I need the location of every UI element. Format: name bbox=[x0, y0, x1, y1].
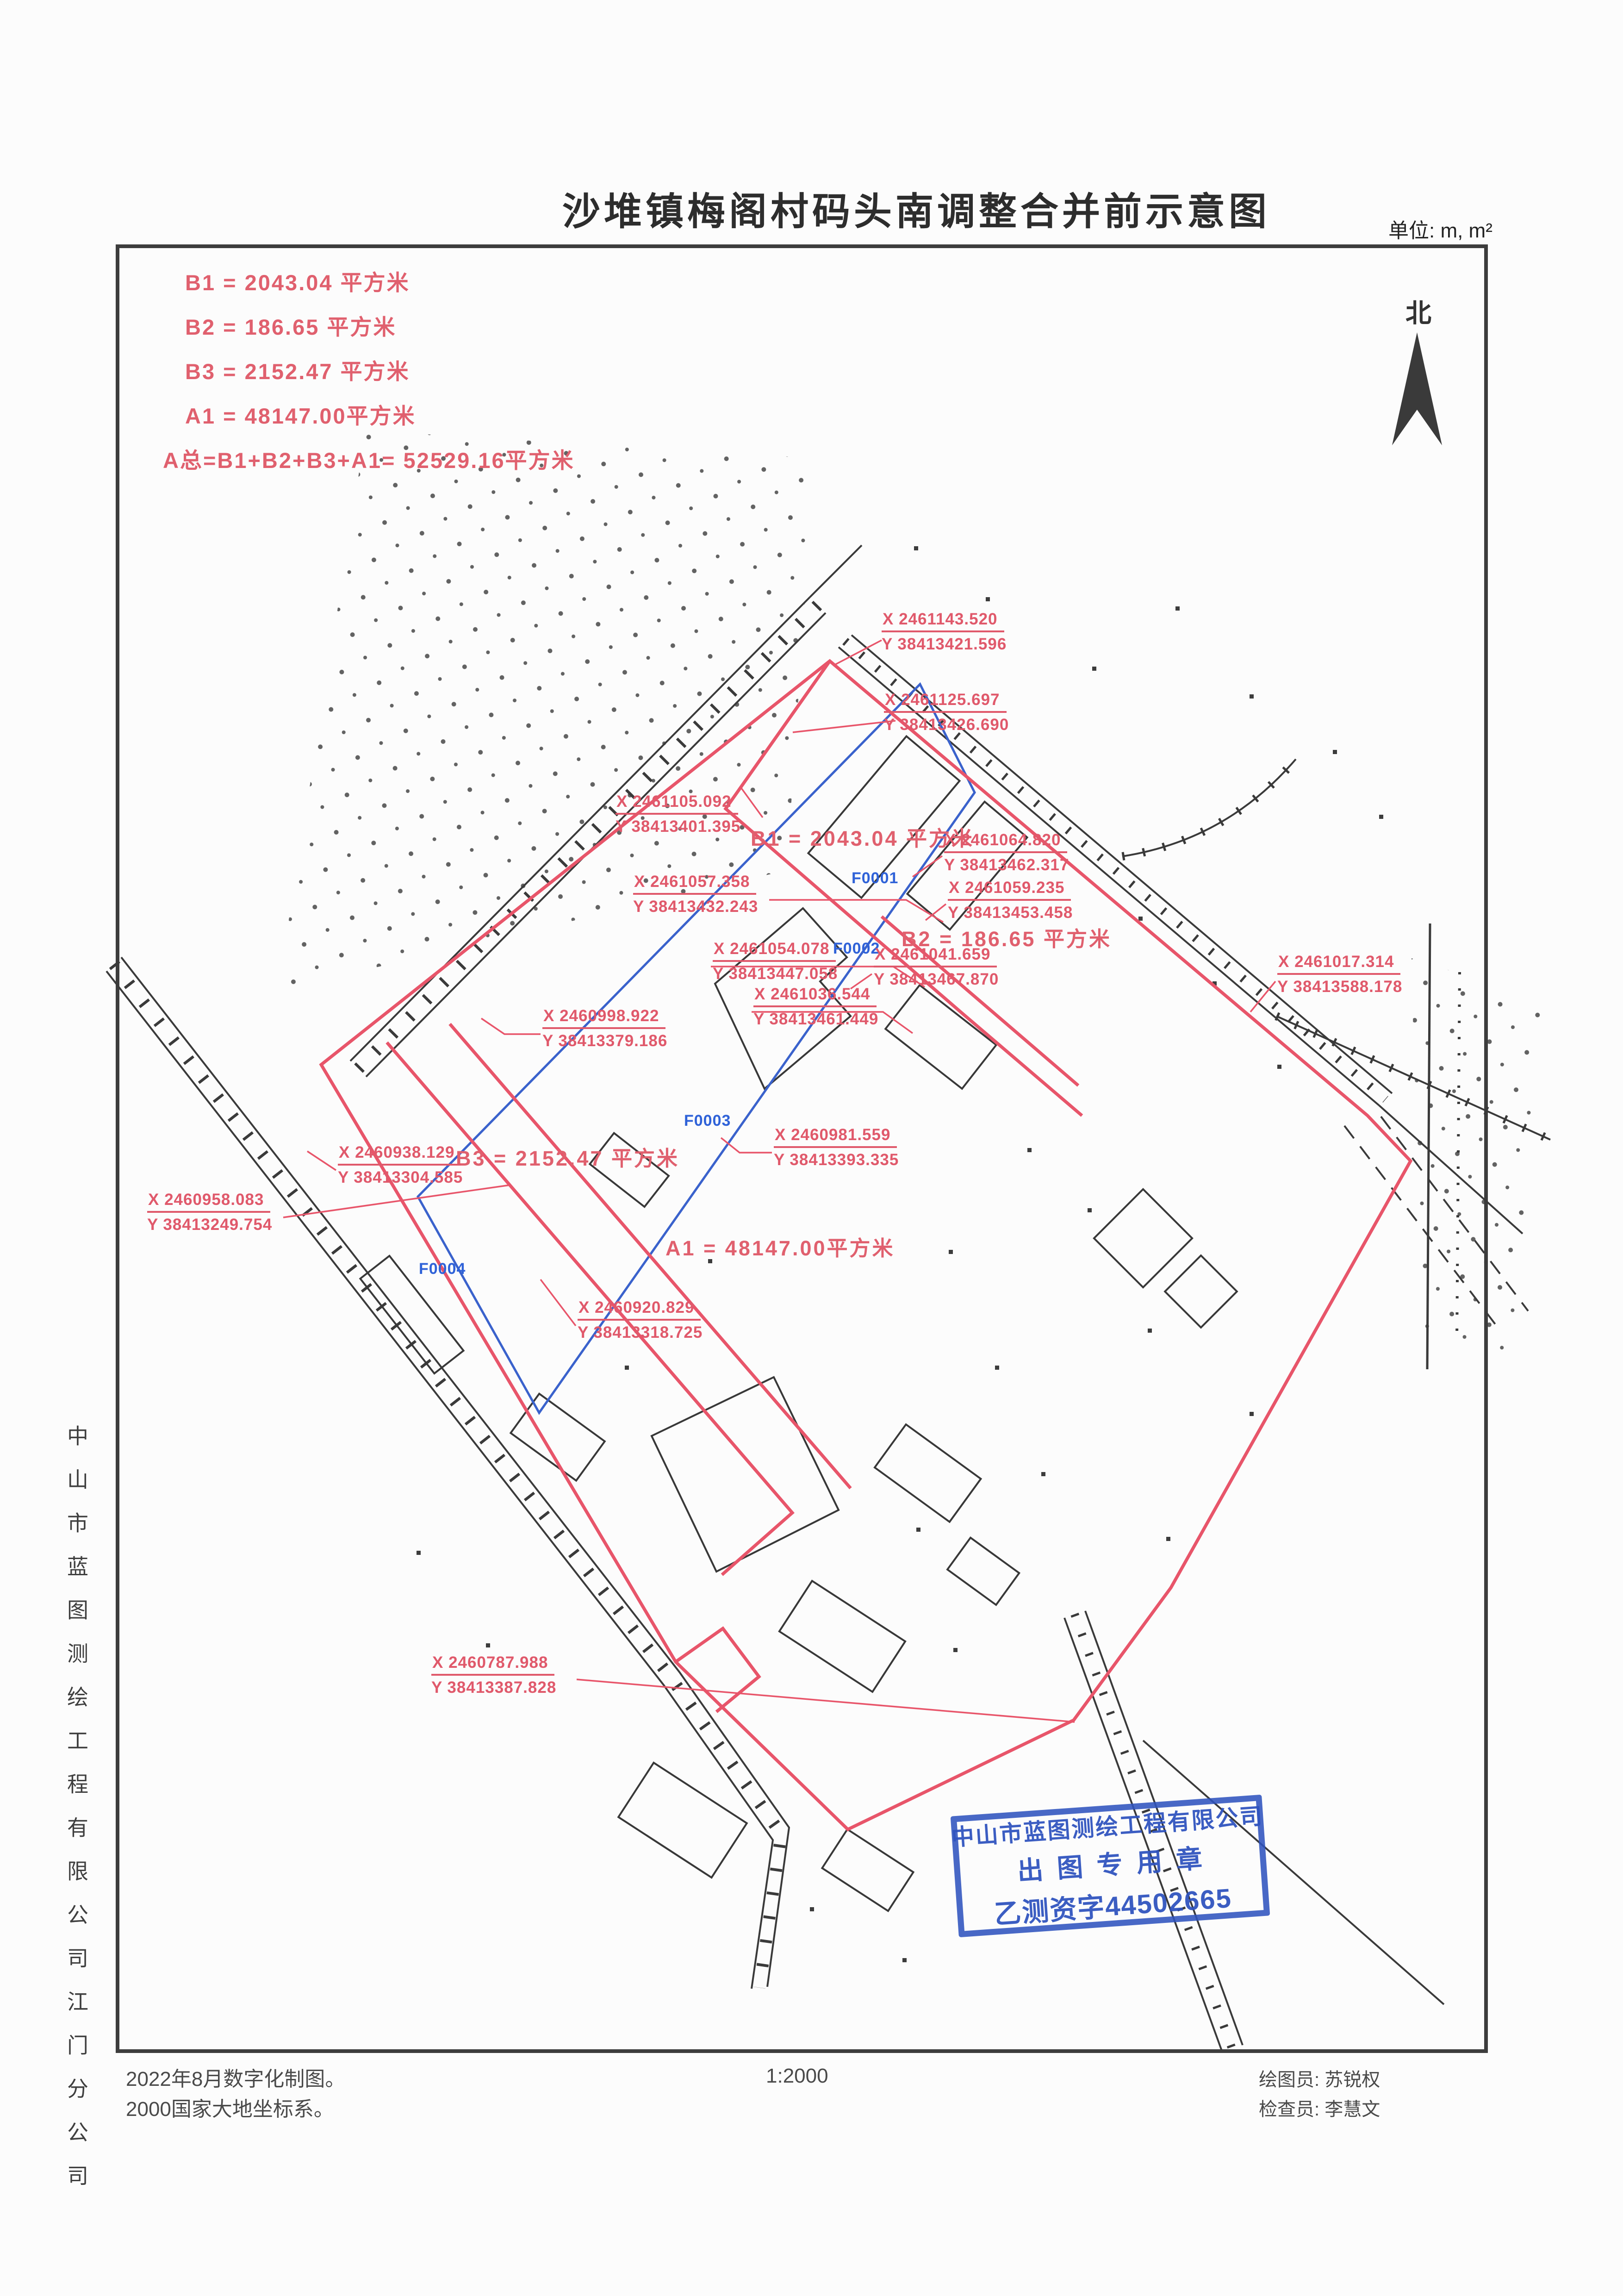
coord-label: X 2461041.659 Y 38413467.870 bbox=[874, 945, 999, 988]
area-summary: B1 = 2043.04 平方米 B2 = 186.65 平方米 B3 = 21… bbox=[185, 265, 575, 474]
coord-label: X 2461057.358 Y 38413432.243 bbox=[633, 873, 758, 916]
north-arrow-icon bbox=[1392, 332, 1442, 445]
footer-drafter: 绘图员: 苏锐权 bbox=[1259, 2065, 1380, 2091]
footer-note-1: 2022年8月数字化制图。 bbox=[126, 2062, 345, 2092]
dot-field-right bbox=[1412, 958, 1541, 1366]
coord-label: X 2460998.922 Y 38413379.186 bbox=[542, 1007, 667, 1050]
coord-label: X 2461017.314 Y 38413588.178 bbox=[1277, 953, 1402, 996]
area-b3: B3 = 2152.47 平方米 bbox=[185, 354, 575, 386]
parcel-label-f0004: F0004 bbox=[419, 1260, 466, 1278]
parcel-label-f0002: F0002 bbox=[833, 940, 880, 958]
road-curve-topright bbox=[1122, 759, 1296, 856]
footer-note-2: 2000国家大地坐标系。 bbox=[126, 2092, 334, 2122]
coord-label: X 2461059.235 Y 38413453.458 bbox=[948, 879, 1073, 922]
coord-label: X 2460938.129 Y 38413304.585 bbox=[338, 1143, 463, 1186]
left-margin-company: 中山市蓝图测绘工程有限公司江门分公司 bbox=[61, 1425, 92, 2208]
map-scale: 1:2000 bbox=[766, 2065, 828, 2088]
coord-label: X 2461143.520 Y 38413421.596 bbox=[882, 610, 1007, 653]
area-b2: B2 = 186.65 平方米 bbox=[185, 309, 575, 341]
coord-label: X 2461125.697 Y 38413426.690 bbox=[884, 691, 1009, 734]
coord-label: X 2460958.083 Y 38413249.754 bbox=[147, 1191, 272, 1234]
coord-label: X 2461054.078 Y 38413447.058 bbox=[713, 940, 838, 983]
map-label-b1: B1 = 2043.04 平方米 bbox=[751, 822, 974, 852]
coord-label: X 2460920.829 Y 38413318.725 bbox=[578, 1298, 703, 1341]
north-label: 北 bbox=[1405, 293, 1431, 330]
parcel-label-f0001: F0001 bbox=[852, 869, 898, 887]
coord-label: X 2460787.988 Y 38413387.828 bbox=[431, 1653, 556, 1697]
area-b1: B1 = 2043.04 平方米 bbox=[185, 265, 575, 297]
area-a1: A1 = 48147.00平方米 bbox=[185, 398, 575, 430]
map-label-a1: A1 = 48147.00平方米 bbox=[665, 1231, 895, 1261]
coord-label: X 2460981.559 Y 38413393.335 bbox=[774, 1126, 899, 1169]
parcel-label-f0003: F0003 bbox=[684, 1112, 731, 1130]
map-label-b3: B3 = 2152.47 平方米 bbox=[456, 1142, 679, 1172]
area-total: A总=B1+B2+B3+A1= 52529.16平方米 bbox=[163, 443, 575, 474]
footer-checker: 检查员: 李慧文 bbox=[1259, 2094, 1380, 2121]
coord-label: X 2461064.820 Y 38413462.317 bbox=[944, 831, 1069, 874]
coord-label: X 2461105.092 Y 38413401.395 bbox=[616, 792, 740, 836]
coord-label: X 2461036.544 Y 38413461.449 bbox=[753, 985, 878, 1028]
company-stamp: 中山市蓝图测绘工程有限公司 出图专用章 乙测资字44502665 bbox=[951, 1795, 1270, 1937]
